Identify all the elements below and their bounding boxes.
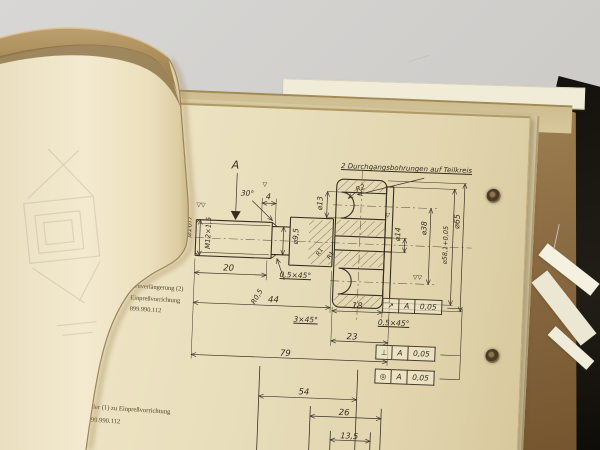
tolerance-value: 0,05	[415, 299, 443, 315]
dim-label: 79	[280, 350, 291, 359]
dim-label: 54	[298, 388, 309, 397]
dim-label: ▽▽	[413, 275, 422, 281]
dim-label: ▽	[262, 182, 267, 188]
dim-label: 20	[223, 264, 234, 273]
dim-label: ⌀38	[420, 221, 428, 235]
dim-label: 13,5	[340, 432, 358, 441]
dim-label: M12×1,5	[205, 217, 213, 249]
dim-label: ⌀65	[453, 214, 462, 229]
dim-label: ⌀9,5	[292, 228, 300, 245]
tolerance-datum: A	[392, 345, 409, 361]
dim-label: ▽▽	[196, 203, 205, 209]
stamp-text-part-title: eller (1) zu Einpreßvorrichtung 899.990.…	[87, 400, 171, 431]
curl-band-highlight	[0, 28, 168, 57]
tolerance-value: 0,05	[408, 346, 436, 362]
datum-triangle	[230, 211, 240, 220]
tolerance-symbol: ◎	[374, 368, 392, 384]
dim-label: 30°	[241, 189, 255, 197]
tolerance-value: 0,05	[407, 370, 435, 386]
surface-scratch	[408, 55, 429, 63]
dim-label: 3×45°	[293, 316, 318, 324]
dim-label: 26	[339, 409, 350, 418]
dim-label: ⌀13	[316, 196, 324, 210]
tolerance-datum: A	[399, 298, 416, 314]
technical-drawing-page: A30°4⌀16f7M12×1,5R0,5⌀9,5200,5×45°44183×…	[40, 98, 530, 450]
dim-label: ▽	[385, 213, 390, 219]
dim-label: 18	[352, 302, 363, 311]
dim-label: 44	[268, 296, 279, 305]
tolerance-symbol: ↗	[382, 298, 400, 314]
dim-label: A	[232, 159, 240, 170]
photo-of-open-technical-manual: A30°4⌀16f7M12×1,5R0,5⌀9,5200,5×45°44183×…	[0, 0, 600, 450]
tolerance-datum: A	[391, 369, 408, 385]
stamp-text-part-title: llenverlängerung (2) Einpreßvorrichtung …	[129, 280, 183, 318]
tolerance-frame-perpendicularity: ⊥ A 0,05	[375, 344, 436, 361]
tolerance-symbol: ⊥	[375, 344, 393, 360]
tolerance-frame-runout: ↗ A 0,05	[382, 298, 443, 315]
tolerance-frame-concentricity: ◎ A 0,05	[374, 368, 435, 385]
dim-label: 0,5×45°	[279, 271, 311, 280]
dim-label: 4	[266, 193, 271, 201]
dim-label: ⌀58,1+0,05	[442, 226, 450, 265]
dim-label: 23	[346, 333, 357, 342]
dim-label: ⌀16f7	[185, 215, 193, 237]
dim-label: ⌀14	[394, 227, 402, 241]
dim-label: 0,5×45°	[378, 319, 410, 328]
